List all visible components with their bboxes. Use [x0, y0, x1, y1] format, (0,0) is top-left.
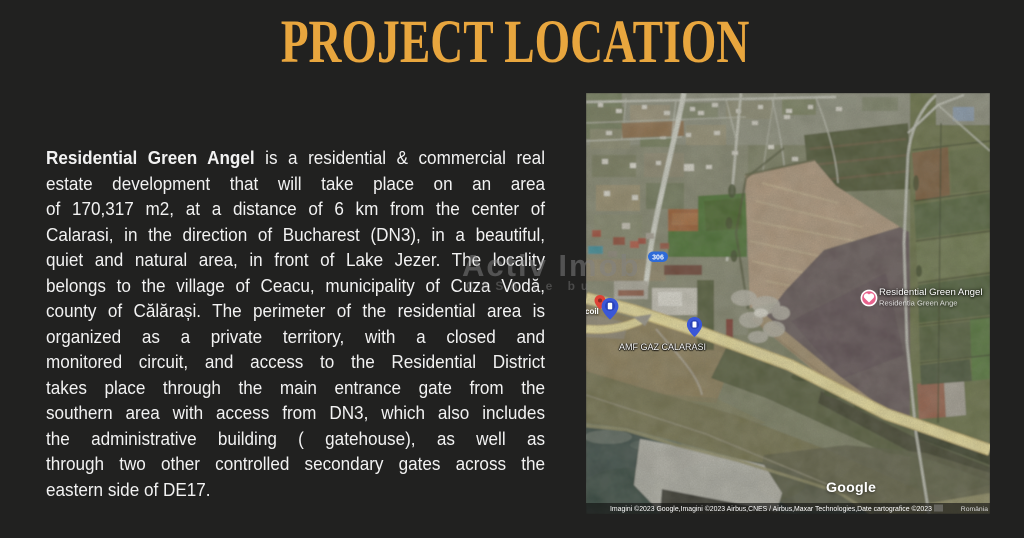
svg-text:306: 306 — [652, 255, 664, 262]
svg-text:AMF GAZ CALARASI: AMF GAZ CALARASI — [619, 342, 706, 352]
svg-text:Imagini ©2023 Google,Imagini ©: Imagini ©2023 Google,Imagini ©2023 Airbu… — [610, 505, 932, 513]
svg-text:Google: Google — [826, 480, 876, 496]
svg-text:Residential Green Angel: Residential Green Angel — [879, 287, 982, 298]
svg-text:Residentia Green Ange: Residentia Green Ange — [879, 299, 958, 308]
svg-text:coil: coil — [586, 307, 599, 316]
svg-text:România: România — [961, 506, 988, 513]
